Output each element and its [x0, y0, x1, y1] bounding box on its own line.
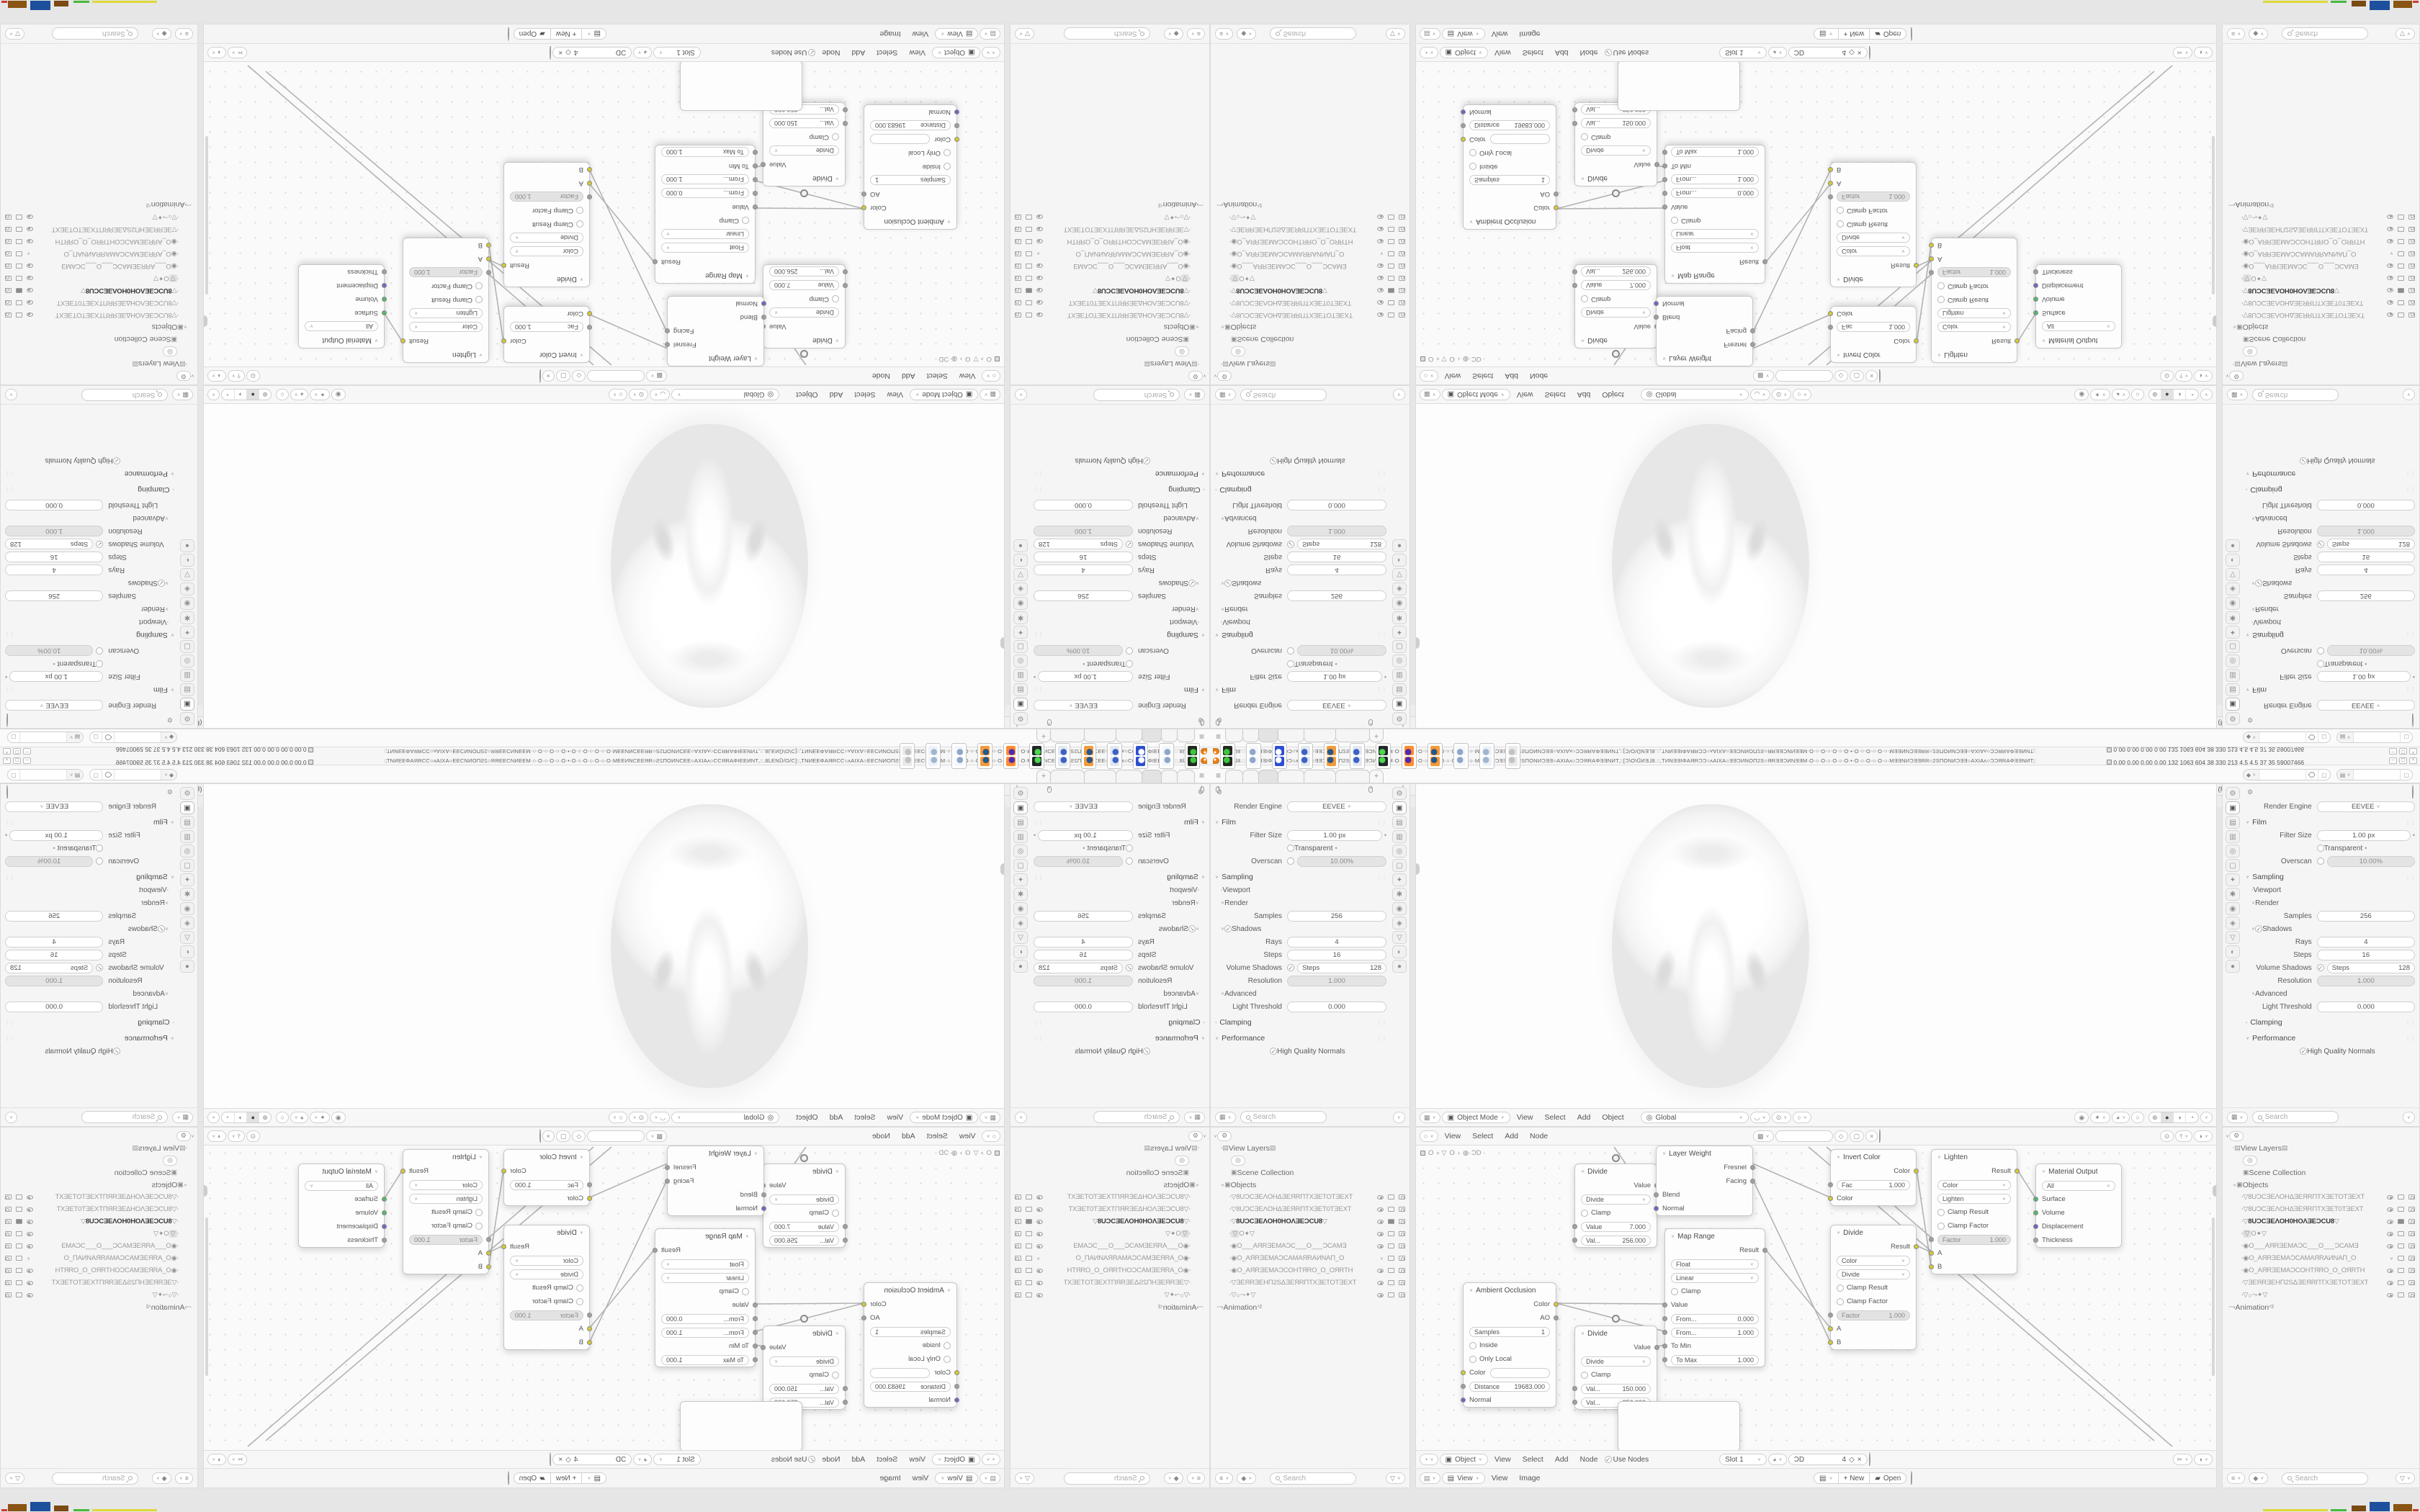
- workspace-tab[interactable]: [1242, 729, 1259, 742]
- maximize-button[interactable]: ▢: [13, 757, 21, 764]
- taskbar-app-document-viewer[interactable]: [1479, 756, 1494, 769]
- disable-render-icon[interactable]: [2408, 251, 2415, 256]
- properties-tab-icon[interactable]: ◉: [1013, 597, 1028, 610]
- mode-dropdown[interactable]: ▣ Object Mode∨: [1442, 389, 1510, 400]
- menu-view[interactable]: View: [1494, 1455, 1511, 1464]
- disable-render-icon[interactable]: [1399, 215, 1405, 220]
- outliner-filter-button[interactable]: ▽∨: [1386, 1472, 1405, 1484]
- outliner-display-mode-button[interactable]: ≡∨: [2227, 1472, 2245, 1484]
- mode-dropdown[interactable]: ▣ Object Mode∨: [910, 389, 978, 400]
- checkbox[interactable]: [1287, 660, 1294, 667]
- region-toggle-nub[interactable]: [1000, 863, 1004, 875]
- outliner-row[interactable]: ▣ Scene Collection: [2223, 333, 2419, 346]
- image-open-button[interactable]: ▰ Open: [1870, 1472, 1906, 1484]
- properties-tab-icon[interactable]: ◈: [1392, 917, 1407, 930]
- node-header[interactable]: ∨Invert Color: [504, 348, 589, 362]
- value-field[interactable]: 1.00 px: [1287, 830, 1382, 841]
- taskbar-app-calculator[interactable]: [1055, 743, 1070, 756]
- minimize-button[interactable]: ─: [23, 757, 31, 764]
- outliner-row[interactable]: › ▽ 8UƆCƎEΛOHΔƎEЯRΠTXƎETOTƎEXT: [1010, 309, 1209, 321]
- node-ambient-occlusion[interactable]: ∨Ambient OcclusionColorAOSamples1InsideO…: [864, 1282, 957, 1408]
- image-open-button[interactable]: ▰ Open: [1870, 28, 1906, 40]
- image-new-button[interactable]: + New: [1839, 28, 1870, 40]
- value-field[interactable]: 256: [5, 911, 103, 922]
- material-browse-button[interactable]: ▩∨: [1753, 1130, 1774, 1142]
- checkbox[interactable]: ✓: [96, 541, 103, 548]
- disable-render-icon[interactable]: [1015, 1231, 1021, 1236]
- properties-tab-icon[interactable]: ⚙: [1392, 787, 1407, 800]
- workspace-tab[interactable]: [1304, 729, 1336, 742]
- disable-viewport-icon[interactable]: [1026, 215, 1032, 220]
- hide-viewport-icon[interactable]: [2387, 1281, 2393, 1285]
- value-field[interactable]: 4: [2317, 565, 2415, 576]
- outliner-row[interactable]: › ◉ O_AЯRƎEMAƆCAMAЯRAИNAΠ_O∨: [1010, 248, 1209, 260]
- properties-tab-icon[interactable]: ⚙: [2226, 712, 2240, 725]
- disable-viewport-icon[interactable]: [16, 312, 22, 318]
- node-row-clamp-result[interactable]: Clamp Result: [1831, 1281, 1916, 1295]
- disable-render-icon[interactable]: [2408, 227, 2415, 232]
- shield-icon[interactable]: ◇: [1849, 49, 1855, 57]
- properties-tab-icon[interactable]: ▢: [180, 640, 194, 653]
- material-browse-button[interactable]: ▩∨: [1753, 370, 1774, 382]
- menu-view[interactable]: View: [1517, 390, 1533, 399]
- outliner-row[interactable]: › ▽ O ✦ ▽: [1, 272, 197, 284]
- node-row-clamp[interactable]: Clamp: [763, 1206, 845, 1220]
- value-field[interactable]: EEVEE∨: [1287, 701, 1386, 711]
- outliner-row[interactable]: › ▤ View Layers ▤: [1, 1142, 197, 1154]
- hide-viewport-icon[interactable]: [1036, 1281, 1043, 1285]
- disable-viewport-icon[interactable]: [2398, 276, 2404, 281]
- node-row-clamp[interactable]: Clamp: [1575, 1368, 1657, 1382]
- hide-viewport-icon[interactable]: [27, 264, 33, 269]
- taskbar-app-calculator[interactable]: [1107, 743, 1122, 756]
- value-field[interactable]: 10.00%: [5, 646, 93, 657]
- taskbar-app-system-monitor[interactable]: [1029, 743, 1044, 756]
- value-field[interactable]: 0.000: [5, 500, 103, 511]
- checkbox[interactable]: [96, 647, 103, 654]
- node-row-distance[interactable]: Distance19683.000: [864, 119, 956, 132]
- properties-tab-icon[interactable]: ▣: [2226, 698, 2240, 711]
- scene-pin-icon[interactable]: [2305, 732, 2318, 742]
- properties-tab-icon[interactable]: ▽: [2226, 931, 2240, 944]
- disable-render-icon[interactable]: [1399, 1231, 1405, 1236]
- node-row-val-[interactable]: Val...256.000: [1575, 1233, 1657, 1247]
- disable-render-icon[interactable]: [5, 300, 12, 305]
- node-row-a[interactable]: A: [1831, 176, 1916, 190]
- properties-tab-icon[interactable]: ●: [180, 539, 194, 552]
- node-row-value[interactable]: Value7.000: [1575, 279, 1657, 292]
- properties-tab-icon[interactable]: ✦: [1013, 626, 1028, 639]
- node-row-blend[interactable]: Blend: [1657, 310, 1752, 324]
- outliner-row[interactable]: › ▽ O ✦ ▽: [2223, 1228, 2419, 1240]
- node-row-color[interactable]: Color: [504, 307, 589, 320]
- image-pin-icon[interactable]: [508, 27, 509, 40]
- outliner-row[interactable]: ∨ ▣ Objects: [1010, 321, 1209, 333]
- properties-tab-icon[interactable]: ▽: [1013, 568, 1028, 581]
- shading-mode-2[interactable]: ◑: [2174, 1112, 2186, 1122]
- node-row-a[interactable]: A: [504, 176, 589, 190]
- node-canvas[interactable]: O ›▽O ›◍ƆD ∨DivideValueDivide∨ClampValue…: [1416, 62, 2216, 366]
- outliner-row[interactable]: ◎: [1, 346, 197, 358]
- value-field[interactable]: 1.000: [1034, 976, 1133, 986]
- menu-view[interactable]: View: [1492, 1474, 1508, 1482]
- material-name-field[interactable]: [1775, 1130, 1833, 1142]
- disable-viewport-icon[interactable]: [16, 300, 22, 305]
- disable-render-icon[interactable]: [2408, 239, 2415, 244]
- disable-viewport-icon[interactable]: [2398, 1194, 2404, 1200]
- taskbar-app-blender[interactable]: [1428, 756, 1443, 769]
- hide-viewport-icon[interactable]: [2387, 1269, 2393, 1273]
- node-header[interactable]: ∨Lighten: [403, 348, 488, 362]
- shader-type-dropdown[interactable]: ▣ Object∨: [932, 1454, 980, 1465]
- reroute-dot[interactable]: [800, 1315, 808, 1323]
- region-toggle-nub[interactable]: [1416, 637, 1420, 649]
- disable-viewport-icon[interactable]: [1388, 251, 1394, 256]
- properties-tab-icon[interactable]: ▤: [1013, 683, 1028, 696]
- node-row-distance[interactable]: Distance19683.000: [1464, 1380, 1556, 1393]
- scene-copy-icon[interactable]: ▢: [90, 770, 102, 780]
- value-field[interactable]: 1.000: [1034, 526, 1133, 537]
- value-field[interactable]: EEVEE∨: [5, 701, 103, 711]
- outliner-row[interactable]: › ▽ 8UƆCƎEΛOHΔƎEЯRΠTXƎET0TƎEXT: [1, 297, 197, 309]
- workspace-tab[interactable]: [1161, 770, 1178, 783]
- disable-viewport-icon[interactable]: [1026, 1256, 1032, 1261]
- node-divide[interactable]: ∨DivideResultColor∨Divide∨Clamp ResultCl…: [1830, 1225, 1917, 1350]
- node-header[interactable]: ∨Divide: [763, 333, 845, 348]
- viewport-editor-type-button[interactable]: ▦∨: [980, 389, 1000, 400]
- properties-tab-icon[interactable]: ◎: [1013, 654, 1028, 667]
- outliner-row[interactable]: › ▽ ○ ⤳ ✦ ▽: [1, 211, 197, 223]
- workspace-tab[interactable]: [1304, 770, 1336, 783]
- properties-tab-icon[interactable]: ▢: [1013, 859, 1028, 872]
- fake-user-shield-icon[interactable]: ◇: [1834, 1130, 1848, 1142]
- menu-node[interactable]: Node: [822, 48, 840, 57]
- hide-viewport-icon[interactable]: [1377, 1269, 1384, 1273]
- add-workspace-button[interactable]: +: [1036, 729, 1051, 742]
- outliner-row[interactable]: › ◉ O_AЯRƎEMAƆCAMAЯRAИNAΠ_O∨: [2223, 1252, 2419, 1264]
- outliner-editor-type-button[interactable]: ◆∨: [152, 28, 171, 40]
- outliner-row[interactable]: › ▽ 8UƆCƎEΛOH0HOΛƎEƆCU8 ▽: [2223, 1215, 2419, 1228]
- node-row-color[interactable]: Color: [1464, 132, 1556, 146]
- hide-viewport-icon[interactable]: [27, 1207, 33, 1212]
- node-row-divide[interactable]: Divide∨: [504, 231, 589, 245]
- disable-viewport-icon[interactable]: [1026, 276, 1032, 281]
- disable-viewport-icon[interactable]: [1388, 288, 1394, 293]
- properties-tab-icon[interactable]: ◈: [2226, 582, 2240, 595]
- properties-search-input[interactable]: Search: [81, 1111, 168, 1123]
- value-field[interactable]: 0.000: [2317, 500, 2415, 511]
- hide-viewport-icon[interactable]: [1036, 215, 1043, 220]
- viewlayer-icon[interactable]: ▤∨: [2337, 770, 2354, 780]
- value-field[interactable]: 256: [1034, 911, 1133, 922]
- disable-viewport-icon[interactable]: [2398, 300, 2404, 305]
- outliner-row[interactable]: › ▽ 8UƆCƎEΛOHΔƎEЯRΠTXƎET0TƎEXT: [2223, 297, 2419, 309]
- disable-render-icon[interactable]: ∨: [1036, 251, 1040, 256]
- checkbox[interactable]: ✓: [1224, 925, 1232, 932]
- node-row-normal[interactable]: Normal: [668, 297, 763, 310]
- properties-tab-icon[interactable]: ◐: [2226, 554, 2240, 567]
- node-row-to-max[interactable]: To Max1.000: [1665, 145, 1765, 159]
- use-nodes-checkbox[interactable]: ✓: [1605, 49, 1612, 56]
- hide-viewport-icon[interactable]: [2387, 313, 2393, 318]
- checkbox[interactable]: ✓: [1188, 580, 1196, 587]
- menu-select[interactable]: Select: [877, 1455, 897, 1464]
- disable-render-icon[interactable]: [1399, 1243, 1405, 1248]
- hide-viewport-icon[interactable]: [1036, 1195, 1043, 1200]
- node-row-normal[interactable]: Normal: [1464, 1393, 1556, 1407]
- node-header[interactable]: ∨Invert Color: [504, 1150, 589, 1164]
- properties-tab-icon[interactable]: ◐: [2226, 945, 2240, 958]
- outliner-row[interactable]: ◎: [1010, 346, 1209, 358]
- disable-render-icon[interactable]: [1015, 312, 1021, 318]
- maximize-button[interactable]: ▢: [2399, 757, 2407, 764]
- node-row-to-min[interactable]: To Min: [655, 159, 755, 173]
- node-partial[interactable]: [1618, 1401, 1740, 1450]
- properties-tab-icon[interactable]: ✱: [1392, 611, 1407, 624]
- menu-add[interactable]: Add: [1505, 372, 1518, 380]
- node-layer-weight[interactable]: ∨Layer WeightFresnelFacingBlendNormal: [667, 1146, 764, 1216]
- outliner-row[interactable]: › ▽ O ✦ ▽: [1211, 1228, 1410, 1240]
- menu-add[interactable]: Add: [1555, 48, 1569, 57]
- workspace-tab[interactable]: [1177, 770, 1195, 783]
- properties-tab-icon[interactable]: ◈: [1392, 582, 1407, 595]
- properties-tab-icon[interactable]: ◉: [1392, 597, 1407, 610]
- checkbox[interactable]: ✓: [1143, 1048, 1150, 1055]
- mode-dropdown[interactable]: ▣ Object Mode∨: [1442, 1112, 1510, 1123]
- taskbar-app-firefox[interactable]: [1402, 743, 1417, 756]
- disable-render-icon[interactable]: [1399, 276, 1405, 281]
- outliner-row[interactable]: › ▽ 8UƆCƎEΛOH0HOΛƎEƆCU8 ▽: [1010, 1215, 1209, 1228]
- node-row-normal[interactable]: Normal: [1464, 105, 1556, 119]
- image-view-dropdown[interactable]: ▤ View∨: [935, 1472, 978, 1484]
- menu-view[interactable]: View: [1445, 372, 1461, 380]
- value-field[interactable]: 10.00%: [1034, 646, 1123, 657]
- properties-tab-icon[interactable]: ▥: [2226, 669, 2240, 682]
- checkbox[interactable]: [1287, 858, 1294, 865]
- reroute-dot[interactable]: [800, 1154, 808, 1162]
- properties-options-button[interactable]: ∨: [1393, 390, 1405, 401]
- snap-node-button[interactable]: ✂∨: [2173, 1454, 2193, 1465]
- node-editor-type-button[interactable]: ○∨: [1420, 370, 1438, 382]
- material-icon-button[interactable]: ◕∨: [633, 1454, 652, 1465]
- menu-add[interactable]: Add: [1505, 1132, 1518, 1140]
- outliner-filter-button[interactable]: ▽∨: [5, 1472, 24, 1484]
- node-row-color[interactable]: Color: [1831, 1192, 1916, 1205]
- outliner-row[interactable]: › ▽ ○ ⤳ ✦ ▽: [2223, 211, 2419, 223]
- image-view-dropdown[interactable]: ▤ View∨: [1442, 1472, 1485, 1484]
- material-unlink-button[interactable]: ×: [1865, 1130, 1878, 1142]
- outliner-row[interactable]: ∨ ▣ Objects: [1211, 321, 1410, 333]
- xray-button[interactable]: ◕∨: [290, 389, 309, 400]
- properties-tab-icon[interactable]: ●: [1392, 960, 1407, 973]
- disable-viewport-icon[interactable]: [1026, 1207, 1032, 1212]
- disable-viewport-icon[interactable]: [1388, 1207, 1394, 1212]
- outliner-row[interactable]: ∨⚙: [1, 370, 197, 382]
- hide-viewport-icon[interactable]: [27, 276, 33, 281]
- value-field[interactable]: 1.00 px: [9, 830, 103, 841]
- shading-mode-2[interactable]: ◑: [2174, 390, 2186, 400]
- node-row-clamp-result[interactable]: Clamp Result: [403, 293, 488, 307]
- outliner-row[interactable]: › ▤ View Layers ▤: [1211, 358, 1410, 370]
- snap-node-button[interactable]: ✂∨: [228, 47, 248, 58]
- disable-render-icon[interactable]: [1015, 1219, 1021, 1224]
- editor-type-button[interactable]: ▦∨: [2227, 390, 2248, 401]
- properties-tab-icon[interactable]: ✱: [1013, 611, 1028, 624]
- value-field[interactable]: 256: [1034, 591, 1133, 602]
- outliner-row[interactable]: › ⤳ Animation ⁴2: [1, 199, 197, 211]
- node-row-inside[interactable]: Inside: [1464, 1338, 1556, 1352]
- unlink-icon[interactable]: ×: [558, 49, 563, 57]
- disable-viewport-icon[interactable]: [16, 288, 22, 293]
- outliner-row[interactable]: ◎: [2223, 1154, 2419, 1166]
- node-row-val-[interactable]: Val...256.000: [763, 265, 845, 279]
- menu-add[interactable]: Add: [902, 1132, 915, 1140]
- value-field[interactable]: 1.00 px: [1038, 672, 1133, 683]
- node-row-to-max[interactable]: To Max1.000: [655, 1353, 755, 1367]
- mode-dropdown[interactable]: ▣ Object Mode∨: [910, 1112, 978, 1123]
- properties-tab-icon[interactable]: ▣: [180, 801, 194, 814]
- node-header[interactable]: ∨Divide: [763, 1326, 845, 1341]
- outliner-row[interactable]: › ◉ O___AЯRƎEMAƆC___O___ƆCAMƎ: [1010, 1240, 1209, 1252]
- menu-view[interactable]: View: [887, 1113, 904, 1122]
- viewport-editor-type-button[interactable]: ▦∨: [1420, 1112, 1440, 1123]
- outliner-row[interactable]: › ▽ 8UƆCƎEΛOHΔƎEЯRΠTXƎETOTƎEXT: [1010, 1191, 1209, 1203]
- taskbar-app-notepad[interactable]: [1453, 743, 1469, 756]
- properties-tab-icon[interactable]: ⚙: [180, 712, 194, 725]
- hide-viewport-icon[interactable]: [2387, 1220, 2393, 1224]
- outliner-row[interactable]: › ▽ ○ ⤳ ✦ ▽: [1, 1289, 197, 1301]
- disable-viewport-icon[interactable]: [1026, 1231, 1032, 1236]
- disable-render-icon[interactable]: [2408, 1219, 2415, 1224]
- value-field[interactable]: 10.00%: [2327, 646, 2415, 657]
- outliner-row[interactable]: › ▽ 8UƆCƎEΛOHΔƎEЯRΠTXƎET0TƎEXT: [1010, 1203, 1209, 1215]
- checkbox[interactable]: [1287, 647, 1294, 654]
- transform-orientation-dropdown[interactable]: ◎ Global∨: [1641, 389, 1749, 400]
- node-row-divide[interactable]: Divide∨: [763, 1354, 845, 1368]
- viewlayer-icon[interactable]: ▤∨: [66, 732, 84, 742]
- proportional-edit-toggle[interactable]: ⊙∨: [629, 1112, 649, 1123]
- image-browse-button[interactable]: ▤∨: [581, 1472, 606, 1484]
- value-field[interactable]: 256: [2317, 591, 2415, 602]
- snap-toggle[interactable]: ◡∨: [650, 1112, 670, 1123]
- disable-viewport-icon[interactable]: [1026, 1292, 1032, 1297]
- disable-render-icon[interactable]: [5, 227, 12, 232]
- hide-viewport-icon[interactable]: [1377, 301, 1384, 305]
- properties-tab-icon[interactable]: ◉: [180, 902, 194, 915]
- hide-viewport-icon[interactable]: [2387, 1293, 2393, 1297]
- outliner-row[interactable]: › ▽ 8UƆCƎEΛOHΔƎEЯRΠTXƎETOTƎEXT: [2223, 1191, 2419, 1203]
- properties-tab-icon[interactable]: ▢: [2226, 640, 2240, 653]
- checkbox[interactable]: [96, 858, 103, 865]
- shader-type-dropdown[interactable]: ▣ Object∨: [932, 47, 980, 58]
- node-row-from-[interactable]: From...0.000: [1665, 186, 1765, 200]
- disable-render-icon[interactable]: [5, 1256, 12, 1261]
- properties-tab-icon[interactable]: ✱: [1013, 888, 1028, 901]
- disable-viewport-icon[interactable]: [16, 1219, 22, 1224]
- value-field[interactable]: 4: [1034, 937, 1133, 948]
- node-header[interactable]: ∨Map Range: [1665, 269, 1765, 283]
- node-row-normal[interactable]: Normal: [1657, 297, 1752, 310]
- region-toggle-nub[interactable]: [1000, 637, 1004, 649]
- hide-viewport-icon[interactable]: [1377, 1195, 1384, 1200]
- taskbar-app-calculator[interactable]: [1298, 756, 1313, 769]
- material-name-pill[interactable]: ƆD 4 ◇×: [552, 1454, 632, 1465]
- outliner-row[interactable]: › ▽ ○ ⤳ ✦ ▽: [1211, 1289, 1410, 1301]
- workspace-tab[interactable]: [1242, 770, 1259, 783]
- node-material-output[interactable]: ∨Material OutputAll∨SurfaceVolumeDisplac…: [2035, 264, 2122, 348]
- menu-node[interactable]: Node: [872, 372, 890, 380]
- menu-add[interactable]: Add: [1577, 1113, 1591, 1122]
- properties-tab-icon[interactable]: ▣: [1392, 698, 1407, 711]
- disable-viewport-icon[interactable]: [16, 276, 22, 281]
- properties-tab-icon[interactable]: ◎: [2226, 654, 2240, 667]
- node-canvas[interactable]: O ›▽O ›◍ƆD ∨DivideValueDivide∨ClampValue…: [204, 1146, 1004, 1450]
- value-field[interactable]: 16: [1287, 552, 1386, 563]
- node-row-factor[interactable]: Factor1.000: [403, 1233, 488, 1246]
- taskbar-app-calculator[interactable]: [1298, 743, 1313, 756]
- node-lighten[interactable]: ∨LightenResultColor∨Lighten∨Clamp Result…: [1931, 1149, 2017, 1274]
- outliner-row[interactable]: › ◉ O___AЯRƎEMAƆC___O___ƆCAMƎ: [2223, 1240, 2419, 1252]
- disable-viewport-icon[interactable]: [2398, 215, 2404, 220]
- node-divide[interactable]: ∨DivideValueDivide∨ClampValue7.000Val...…: [763, 264, 846, 348]
- outliner-row[interactable]: › ⤳ Animation ⁴2: [1211, 199, 1410, 211]
- value-field[interactable]: 0.000: [1287, 1002, 1386, 1012]
- taskbar-app-firefox[interactable]: [1402, 756, 1417, 769]
- reroute-dot[interactable]: [800, 189, 808, 197]
- properties-tab-icon[interactable]: ◉: [1392, 902, 1407, 915]
- node-row-displacement[interactable]: Displacement: [299, 1220, 384, 1233]
- outliner-row[interactable]: › ▽ ƎEЯRƎEHΠ2SΔƎEЯRΠTXƎETOTƎEXT: [2223, 1277, 2419, 1289]
- hide-viewport-icon[interactable]: [1377, 276, 1384, 281]
- node-canvas-scrollbar[interactable]: [2212, 136, 2215, 294]
- shading-mode-1[interactable]: ●: [246, 1112, 259, 1122]
- fake-user-shield-icon[interactable]: ◇: [572, 1130, 586, 1142]
- node-divide[interactable]: ∨DivideValueDivide∨ClampValue7.000Val...…: [1574, 264, 1657, 348]
- disable-render-icon[interactable]: [1015, 1243, 1021, 1248]
- outliner-row[interactable]: › ▽ ƎEЯRƎEHΠ2SΔƎEЯRΠTXƎETOTƎEXT: [1, 1277, 197, 1289]
- overlay-toggle-button[interactable]: ⫯∨: [2175, 1130, 2192, 1142]
- properties-tab-icon[interactable]: ◉: [2226, 902, 2240, 915]
- properties-tab-icon[interactable]: ◎: [180, 654, 194, 667]
- disable-render-icon[interactable]: [1399, 1268, 1405, 1273]
- menu-node[interactable]: Node: [1530, 372, 1548, 380]
- hide-viewport-icon[interactable]: [1036, 289, 1043, 293]
- menu-view[interactable]: View: [1445, 1132, 1461, 1140]
- shading-mode-1[interactable]: ●: [2161, 390, 2174, 400]
- image-view-dropdown[interactable]: ▤ View∨: [935, 28, 978, 40]
- hide-viewport-icon[interactable]: [1036, 276, 1043, 281]
- value-field[interactable]: 0.000: [2317, 1002, 2415, 1012]
- disable-render-icon[interactable]: [2408, 288, 2415, 293]
- node-row-from-[interactable]: From...0.000: [1665, 1312, 1765, 1326]
- properties-options-button[interactable]: ∨: [1015, 390, 1027, 401]
- node-row-divide[interactable]: Divide∨: [1575, 306, 1657, 320]
- menu-add[interactable]: Add: [830, 390, 843, 399]
- hide-viewport-icon[interactable]: [2387, 1244, 2393, 1248]
- node-row-inside[interactable]: Inside: [864, 160, 956, 174]
- menu-select[interactable]: Select: [1472, 1132, 1493, 1140]
- hide-viewport-icon[interactable]: [27, 1195, 33, 1200]
- properties-tab-icon[interactable]: ◎: [180, 845, 194, 858]
- outliner-row[interactable]: ▣ Scene Collection: [2223, 1166, 2419, 1179]
- shader-type-dropdown[interactable]: ▣ Object∨: [1440, 47, 1488, 58]
- workspace-tab[interactable]: [1050, 770, 1085, 783]
- disable-render-icon[interactable]: ∨: [27, 1256, 30, 1260]
- value-field[interactable]: 16: [2317, 552, 2415, 563]
- node-header[interactable]: ∨Divide: [1575, 171, 1657, 186]
- xray-button[interactable]: ◕∨: [2112, 389, 2130, 400]
- outliner-row[interactable]: › ◉ O_AЯRƎEMAƆCOHTЯRO_O_OЯRTH: [1, 1264, 197, 1277]
